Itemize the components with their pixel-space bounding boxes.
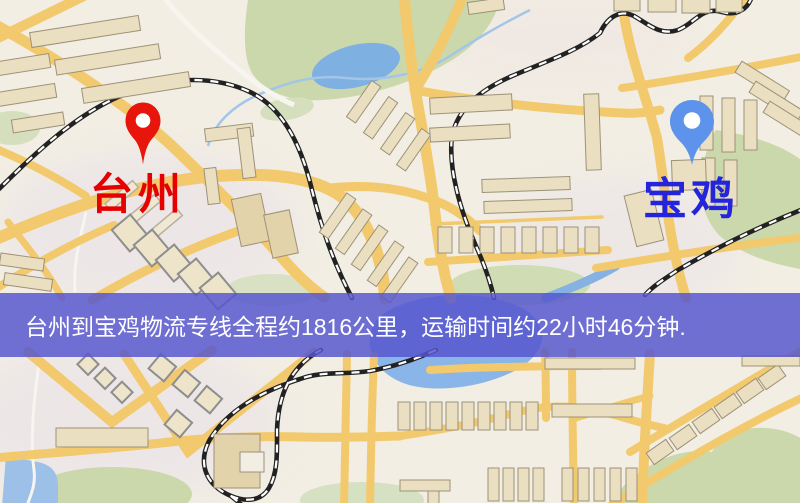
pin-shape bbox=[670, 100, 714, 165]
route-info-banner: 台州到宝鸡物流专线全程约1816公里，运输时间约22小时46分钟. bbox=[0, 293, 800, 357]
destination-pin-icon bbox=[667, 98, 717, 168]
destination-city-label: 宝鸡 bbox=[638, 178, 744, 222]
pin-hole bbox=[684, 112, 701, 129]
map-view[interactable]: 台州 宝鸡 台州到宝鸡物流专线全程约1816公里，运输时间约22小时46分钟. bbox=[0, 0, 800, 503]
pin-shape bbox=[126, 103, 161, 165]
origin-city-label: 台州 bbox=[84, 174, 192, 217]
origin-pin-icon bbox=[123, 101, 163, 167]
origin-pin[interactable] bbox=[123, 101, 163, 167]
map-background bbox=[0, 0, 800, 503]
destination-pin[interactable] bbox=[667, 98, 717, 168]
route-info-text: 台州到宝鸡物流专线全程约1816公里，运输时间约22小时46分钟. bbox=[0, 308, 686, 342]
pin-hole bbox=[136, 113, 151, 128]
